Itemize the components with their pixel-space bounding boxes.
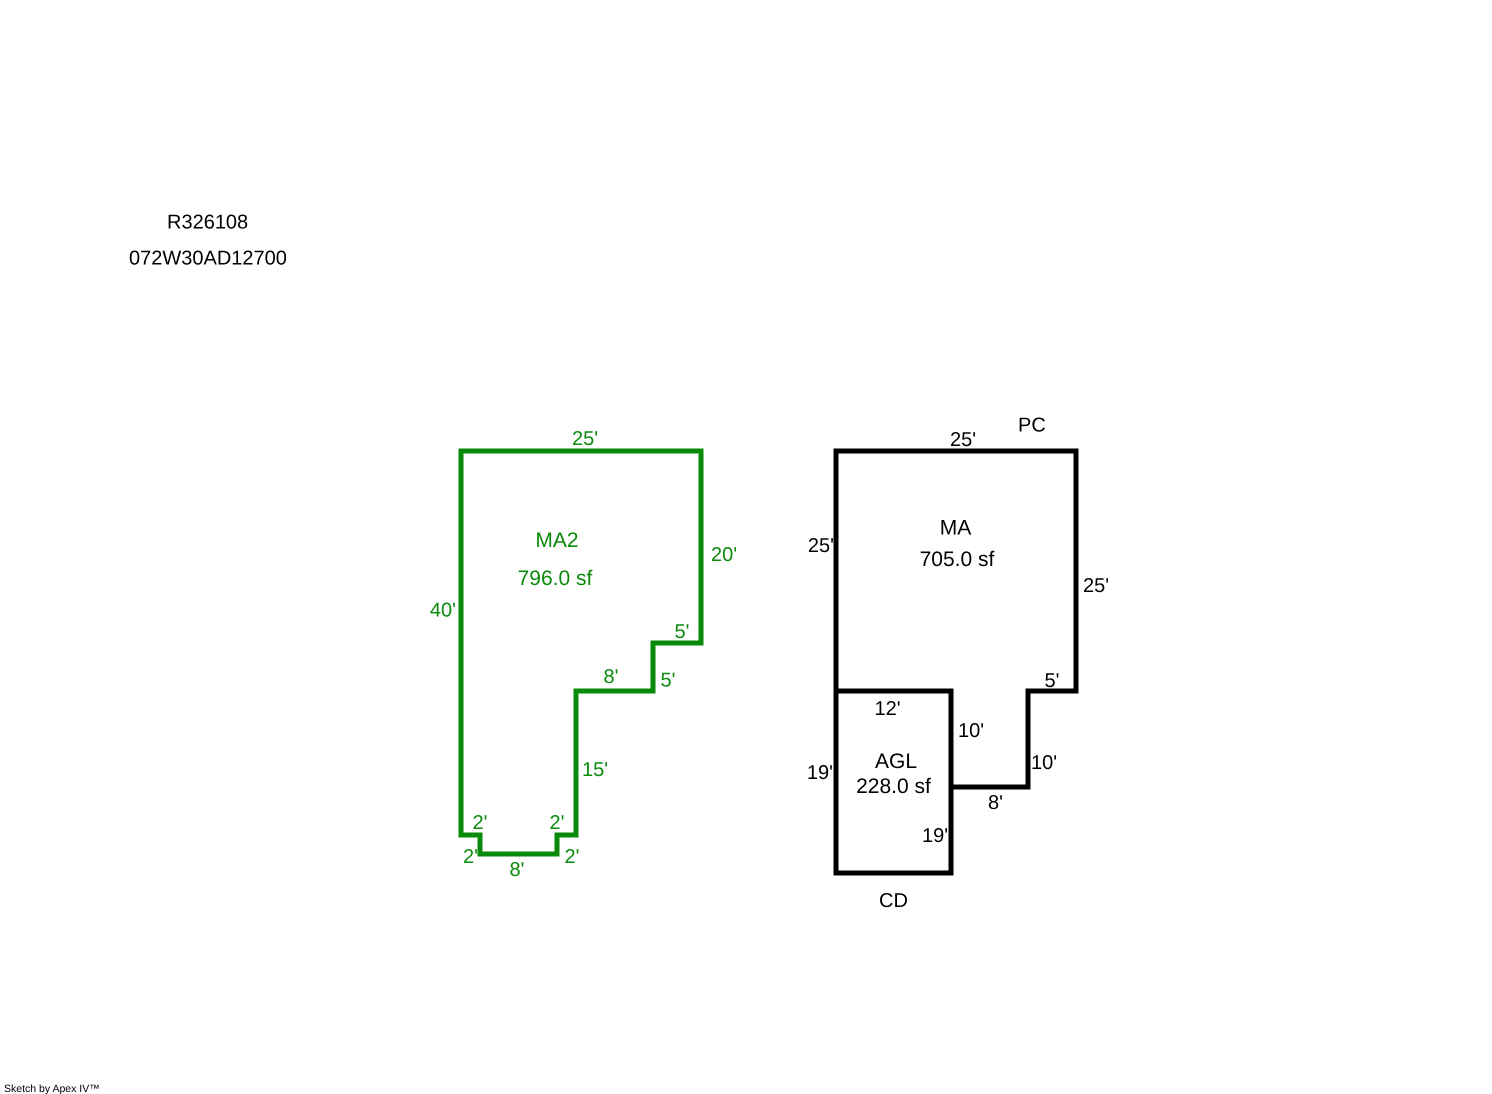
svg-text:PC: PC (1018, 415, 1046, 437)
svg-text:MA2: MA2 (535, 529, 578, 552)
svg-text:40': 40' (430, 600, 456, 622)
svg-text:072W30AD12700: 072W30AD12700 (129, 248, 287, 270)
svg-text:705.0 sf: 705.0 sf (920, 548, 995, 571)
svg-text:25': 25' (572, 428, 598, 450)
svg-text:19': 19' (807, 762, 833, 784)
svg-text:AGL: AGL (875, 750, 917, 773)
svg-text:8': 8' (604, 666, 619, 688)
svg-text:2': 2' (565, 846, 580, 868)
svg-text:8': 8' (988, 792, 1003, 814)
svg-text:10': 10' (1031, 752, 1057, 774)
svg-text:R326108: R326108 (167, 212, 248, 234)
svg-text:796.0 sf: 796.0 sf (518, 567, 593, 590)
svg-text:10': 10' (958, 720, 984, 742)
svg-text:8': 8' (510, 859, 525, 881)
svg-text:12': 12' (874, 698, 900, 720)
svg-text:2': 2' (473, 812, 488, 834)
svg-text:2': 2' (550, 812, 565, 834)
svg-text:19': 19' (922, 825, 948, 847)
svg-text:MA: MA (940, 517, 972, 540)
svg-text:5': 5' (675, 621, 690, 643)
svg-text:5': 5' (661, 670, 676, 692)
svg-text:Sketch by Apex IV™: Sketch by Apex IV™ (4, 1083, 100, 1094)
svg-text:15': 15' (582, 759, 608, 781)
svg-text:20': 20' (711, 544, 737, 566)
svg-text:25': 25' (808, 535, 834, 557)
svg-text:25': 25' (950, 429, 976, 451)
svg-text:5': 5' (1045, 670, 1060, 692)
svg-text:CD: CD (879, 890, 908, 912)
svg-text:228.0 sf: 228.0 sf (856, 775, 931, 798)
svg-text:25': 25' (1083, 575, 1109, 597)
svg-text:2': 2' (463, 846, 478, 868)
